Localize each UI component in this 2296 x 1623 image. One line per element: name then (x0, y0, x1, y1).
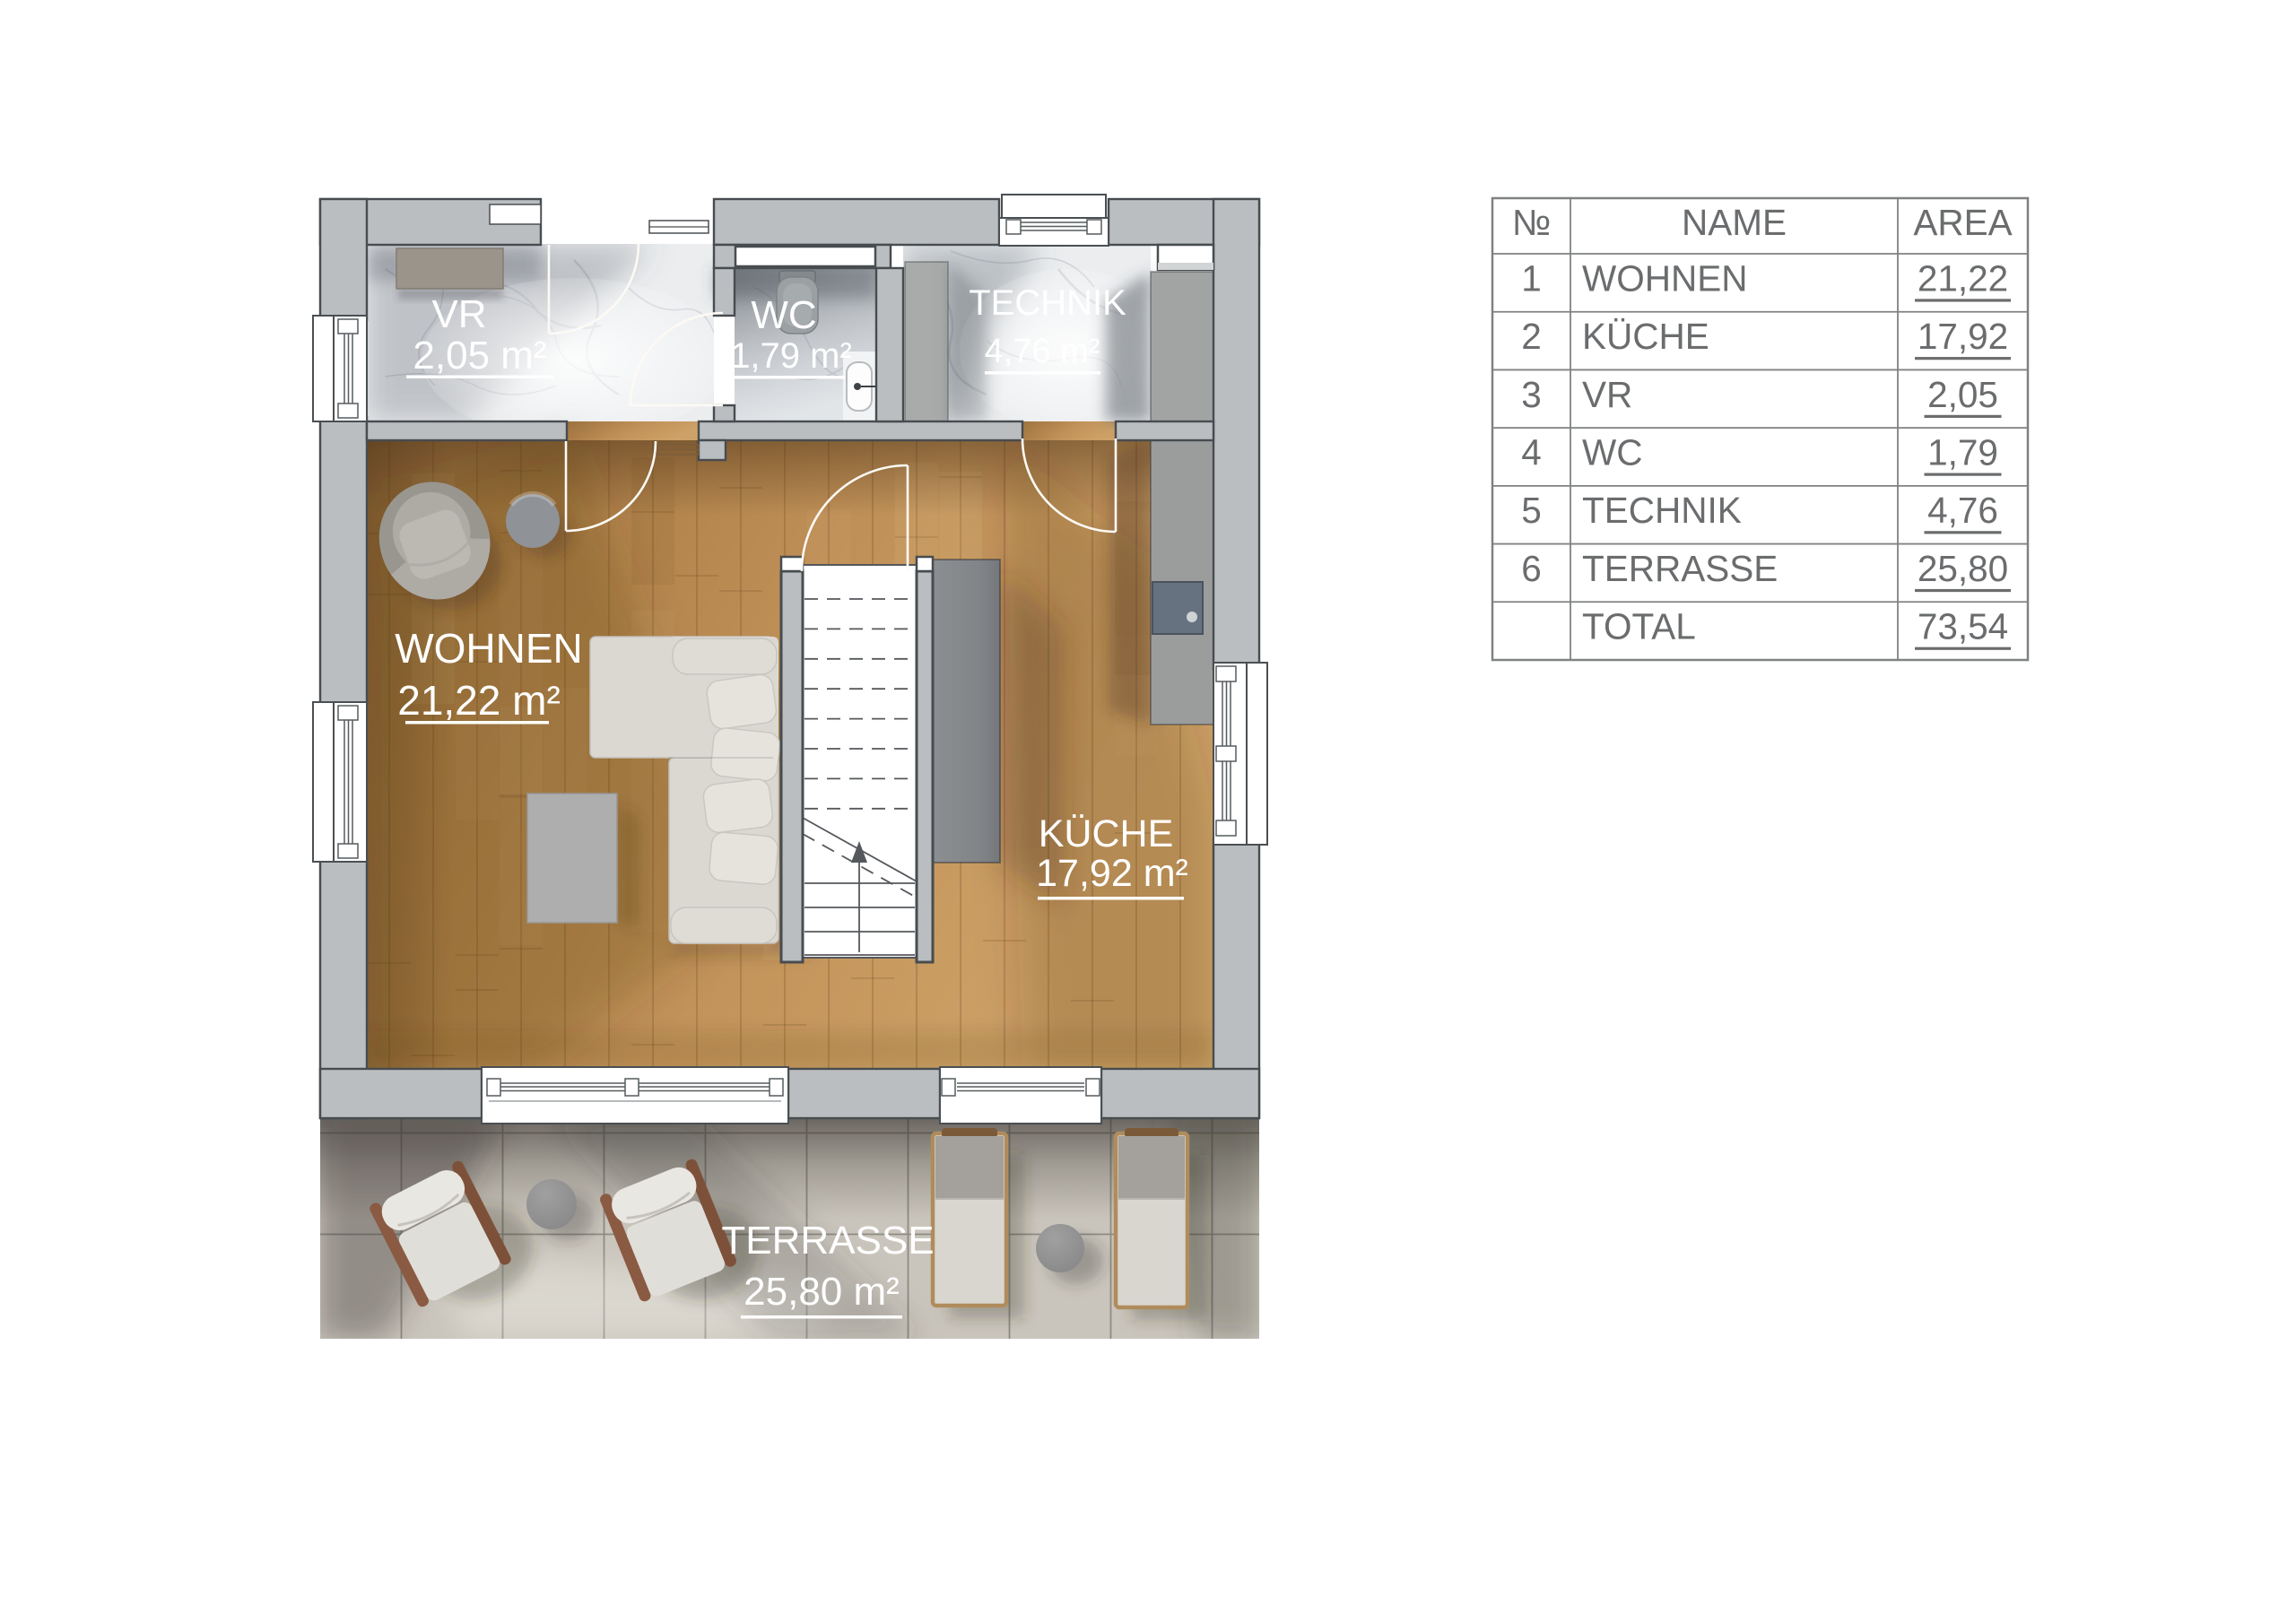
svg-text:NAME: NAME (1682, 202, 1787, 243)
svg-text:2,05 m²: 2,05 m² (413, 334, 546, 378)
svg-text:WC: WC (751, 293, 816, 337)
svg-text:WC: WC (1582, 432, 1642, 473)
svg-text:17,92 m²: 17,92 m² (1036, 852, 1188, 895)
svg-text:4,76: 4,76 (1927, 490, 1998, 531)
svg-text:21,22: 21,22 (1918, 257, 2008, 299)
svg-text:TOTAL: TOTAL (1582, 606, 1696, 647)
svg-text:6: 6 (1521, 548, 1542, 589)
svg-text:VR: VR (431, 292, 486, 336)
svg-text:1,79: 1,79 (1927, 432, 1998, 473)
svg-text:WOHNEN: WOHNEN (1582, 257, 1748, 299)
svg-text:TECHNIK: TECHNIK (969, 283, 1126, 323)
svg-text:25,80: 25,80 (1918, 548, 2008, 589)
svg-text:1,79 m²: 1,79 m² (730, 336, 852, 376)
svg-text:KÜCHE: KÜCHE (1039, 812, 1174, 855)
svg-text:№: № (1512, 202, 1551, 243)
svg-text:2: 2 (1521, 316, 1542, 357)
svg-text:TERRASSE: TERRASSE (721, 1219, 934, 1263)
svg-text:4: 4 (1521, 432, 1542, 473)
svg-text:WOHNEN: WOHNEN (395, 625, 583, 672)
svg-text:5: 5 (1521, 490, 1542, 531)
svg-text:17,92: 17,92 (1918, 316, 2008, 357)
svg-text:21,22 m²: 21,22 m² (397, 677, 561, 724)
svg-text:VR: VR (1582, 374, 1632, 415)
svg-text:4,76 m²: 4,76 m² (985, 333, 1100, 370)
svg-text:3: 3 (1521, 374, 1542, 415)
svg-text:73,54: 73,54 (1918, 606, 2008, 647)
svg-text:25,80 m²: 25,80 m² (744, 1270, 900, 1314)
svg-text:1: 1 (1521, 257, 1542, 299)
svg-text:AREA: AREA (1913, 202, 2012, 243)
svg-text:TERRASSE: TERRASSE (1582, 548, 1778, 589)
svg-text:2,05: 2,05 (1927, 374, 1998, 415)
svg-text:KÜCHE: KÜCHE (1582, 316, 1709, 357)
svg-text:TECHNIK: TECHNIK (1582, 490, 1742, 531)
